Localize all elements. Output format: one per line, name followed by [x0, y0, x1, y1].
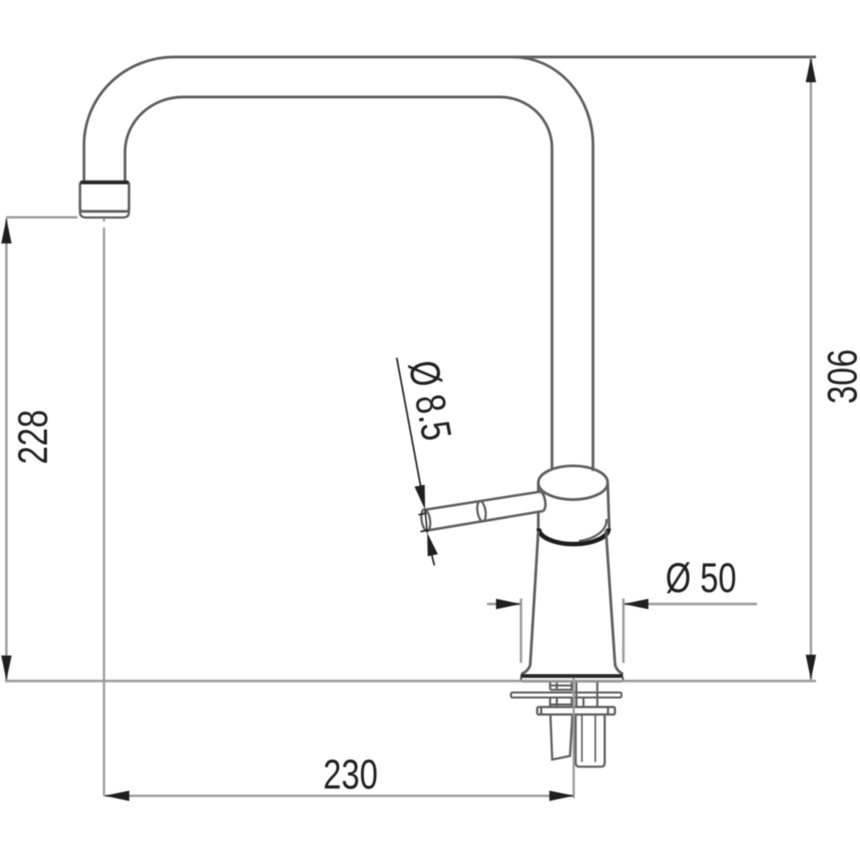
svg-text:230: 230: [323, 751, 378, 798]
svg-text:306: 306: [819, 349, 860, 404]
svg-text:Ø 50: Ø 50: [665, 554, 736, 601]
svg-text:Ø 8.5: Ø 8.5: [400, 357, 461, 444]
svg-text:228: 228: [9, 410, 56, 465]
